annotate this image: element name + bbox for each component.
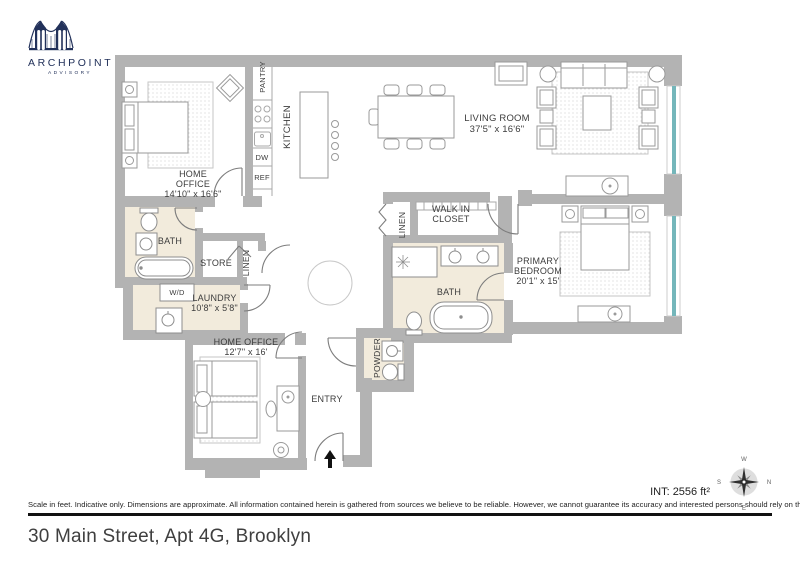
room-name: HOME OFFICE — [169, 169, 217, 189]
primary-bedroom-label: PRIMARY BEDROOM 20'1" x 15' — [499, 256, 577, 286]
floor-plan-page: ARCHPOINT ADVISORY — [0, 0, 800, 565]
footer-rule — [28, 513, 772, 516]
room-name: LAUNDRY — [177, 293, 252, 303]
stove-icon — [255, 106, 261, 112]
entry-label: ENTRY — [294, 394, 360, 404]
powder-label: POWDER — [372, 336, 382, 380]
bath-1-label: BATH — [140, 236, 200, 246]
desk-chair — [266, 401, 276, 417]
sofa — [561, 62, 627, 88]
toilet — [383, 364, 398, 380]
room-dims: 10'8" x 5'8" — [177, 303, 252, 313]
room-dims: 12'7" x 16' — [196, 347, 296, 357]
refrigerator-label: REF — [248, 173, 276, 182]
primary-bath-label: BATH — [419, 287, 479, 297]
floor-plan — [0, 0, 800, 565]
room-name: HOME OFFICE — [196, 337, 296, 347]
room-dims: 20'1" x 15' — [499, 276, 577, 286]
kitchen-island — [300, 92, 339, 178]
linen-2-label: LINEN — [397, 208, 407, 242]
compass-s: S — [717, 480, 721, 486]
pantry-label: PANTRY — [257, 57, 267, 97]
toilet — [407, 312, 422, 330]
linen-1-label: LINEN — [241, 246, 251, 280]
room-dims: 37'5" x 16'6" — [437, 125, 557, 136]
disclaimer-text: Scale in feet. Indicative only. Dimensio… — [28, 500, 772, 509]
coffee-table — [583, 96, 611, 130]
side-table — [540, 66, 556, 82]
entry-arrow-icon — [324, 450, 336, 468]
home-office-1-label: HOME OFFICE 14'10" x 16'6" — [143, 169, 243, 199]
plant — [274, 443, 289, 458]
store-label: STORE — [185, 258, 247, 268]
bifold-door — [379, 204, 386, 236]
address-title: 30 Main Street, Apt 4G, Brooklyn — [28, 526, 311, 548]
compass-w: W — [741, 457, 747, 463]
entry-table — [308, 261, 352, 305]
desk — [277, 386, 299, 431]
compass-n: N — [767, 480, 771, 486]
home-office-2-label: HOME OFFICE 12'7" x 16' — [196, 337, 296, 357]
kitchen-label: KITCHEN — [281, 92, 293, 162]
laundry-label: LAUNDRY 10'8" x 5'8" — [177, 293, 252, 313]
dresser — [566, 176, 628, 196]
powder-fixtures — [382, 341, 404, 380]
dishwasher-label: DW — [248, 153, 276, 162]
walk-in-closet-label: WALK IN CLOSET — [417, 204, 485, 224]
toilet — [141, 213, 157, 231]
interior-area: INT: 2556 ft² — [595, 486, 710, 498]
room-name: PRIMARY BEDROOM — [507, 256, 569, 276]
living-room-label: LIVING ROOM 37'5" x 16'6" — [437, 114, 557, 135]
room-dims: 14'10" x 16'6" — [143, 189, 243, 199]
